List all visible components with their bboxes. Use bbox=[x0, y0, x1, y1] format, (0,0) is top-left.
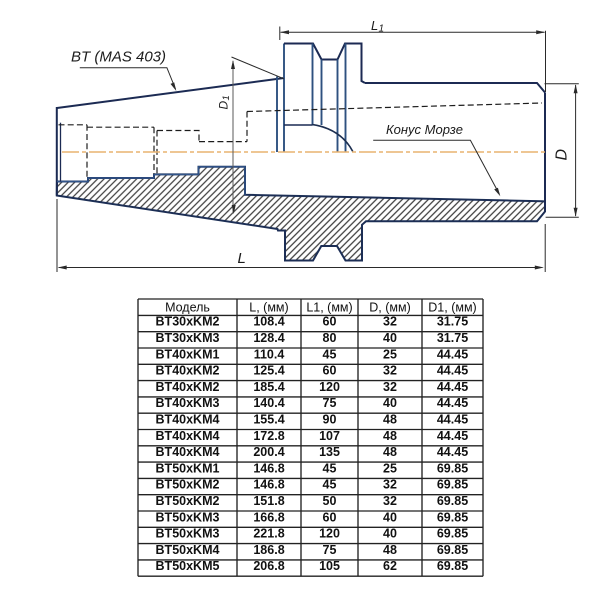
svg-text:31.75: 31.75 bbox=[437, 331, 468, 345]
svg-text:BT50xKM4: BT50xKM4 bbox=[156, 543, 220, 557]
svg-text:44.45: 44.45 bbox=[437, 429, 468, 443]
svg-text:BT50xKM3: BT50xKM3 bbox=[156, 510, 220, 524]
svg-text:Модель: Модель bbox=[165, 301, 210, 315]
svg-text:40: 40 bbox=[383, 527, 397, 541]
svg-text:BT50xKM1: BT50xKM1 bbox=[156, 461, 220, 475]
svg-text:50: 50 bbox=[323, 494, 337, 508]
svg-text:D: D bbox=[554, 149, 571, 161]
svg-text:75: 75 bbox=[323, 543, 337, 557]
svg-text:40: 40 bbox=[383, 331, 397, 345]
svg-text:60: 60 bbox=[323, 364, 337, 378]
svg-text:120: 120 bbox=[319, 527, 340, 541]
svg-text:172.8: 172.8 bbox=[253, 429, 284, 443]
svg-text:48: 48 bbox=[383, 429, 397, 443]
svg-text:166.8: 166.8 bbox=[253, 510, 284, 524]
svg-text:31.75: 31.75 bbox=[437, 315, 468, 329]
svg-text:45: 45 bbox=[323, 347, 337, 361]
svg-text:BT40xKM4: BT40xKM4 bbox=[156, 413, 220, 427]
svg-text:BT50xKM2: BT50xKM2 bbox=[156, 494, 220, 508]
svg-text:69.85: 69.85 bbox=[437, 478, 468, 492]
svg-text:D: D bbox=[217, 101, 231, 110]
svg-text:25: 25 bbox=[383, 461, 397, 475]
svg-text:80: 80 bbox=[323, 331, 337, 345]
svg-text:D, (мм): D, (мм) bbox=[369, 301, 411, 315]
svg-text:128.4: 128.4 bbox=[253, 331, 284, 345]
svg-text:44.45: 44.45 bbox=[437, 396, 468, 410]
svg-text:32: 32 bbox=[383, 478, 397, 492]
svg-text:75: 75 bbox=[323, 396, 337, 410]
svg-text:1: 1 bbox=[379, 24, 385, 35]
svg-text:BT40xKM4: BT40xKM4 bbox=[156, 445, 220, 459]
svg-text:25: 25 bbox=[383, 347, 397, 361]
svg-text:48: 48 bbox=[383, 445, 397, 459]
svg-text:107: 107 bbox=[319, 429, 340, 443]
svg-text:108.4: 108.4 bbox=[253, 315, 284, 329]
svg-text:155.4: 155.4 bbox=[253, 413, 284, 427]
svg-text:200.4: 200.4 bbox=[253, 445, 284, 459]
svg-text:186.8: 186.8 bbox=[253, 543, 284, 557]
svg-text:1: 1 bbox=[221, 95, 232, 100]
svg-text:40: 40 bbox=[383, 510, 397, 524]
svg-text:BT40xKM2: BT40xKM2 bbox=[156, 364, 220, 378]
svg-text:40: 40 bbox=[383, 396, 397, 410]
svg-text:120: 120 bbox=[319, 380, 340, 394]
svg-text:BT40xKM1: BT40xKM1 bbox=[156, 347, 220, 361]
svg-text:206.8: 206.8 bbox=[253, 559, 284, 573]
svg-text:BT40xKM4: BT40xKM4 bbox=[156, 429, 220, 443]
svg-text:151.8: 151.8 bbox=[253, 494, 284, 508]
svg-text:69.85: 69.85 bbox=[437, 494, 468, 508]
svg-text:185.4: 185.4 bbox=[253, 380, 284, 394]
svg-text:BT30xKM3: BT30xKM3 bbox=[156, 331, 220, 345]
svg-text:44.45: 44.45 bbox=[437, 445, 468, 459]
svg-text:44.45: 44.45 bbox=[437, 347, 468, 361]
svg-text:44.45: 44.45 bbox=[437, 364, 468, 378]
svg-text:146.8: 146.8 bbox=[253, 478, 284, 492]
svg-text:32: 32 bbox=[383, 494, 397, 508]
svg-text:62: 62 bbox=[383, 559, 397, 573]
svg-text:69.85: 69.85 bbox=[437, 543, 468, 557]
svg-text:69.85: 69.85 bbox=[437, 527, 468, 541]
svg-text:140.4: 140.4 bbox=[253, 396, 284, 410]
svg-text:BT50xKM3: BT50xKM3 bbox=[156, 527, 220, 541]
svg-text:110.4: 110.4 bbox=[254, 347, 285, 361]
svg-text:BT30xKM2: BT30xKM2 bbox=[156, 315, 220, 329]
svg-text:BT40xKM2: BT40xKM2 bbox=[156, 380, 220, 394]
svg-text:L: L bbox=[238, 250, 246, 267]
svg-text:44.45: 44.45 bbox=[437, 413, 468, 427]
svg-text:L: L bbox=[371, 18, 378, 33]
svg-text:125.4: 125.4 bbox=[253, 364, 284, 378]
svg-text:32: 32 bbox=[383, 380, 397, 394]
svg-text:135: 135 bbox=[319, 445, 340, 459]
svg-text:60: 60 bbox=[323, 315, 337, 329]
svg-text:221.8: 221.8 bbox=[253, 527, 284, 541]
svg-text:BT50xKM2: BT50xKM2 bbox=[156, 478, 220, 492]
svg-text:69.85: 69.85 bbox=[437, 559, 468, 573]
svg-text:BT (MAS 403): BT (MAS 403) bbox=[71, 49, 166, 66]
svg-text:L, (мм): L, (мм) bbox=[249, 301, 288, 315]
svg-text:BT40xKM3: BT40xKM3 bbox=[156, 396, 220, 410]
svg-text:90: 90 bbox=[323, 413, 337, 427]
svg-text:L1, (мм): L1, (мм) bbox=[306, 301, 352, 315]
svg-text:D1, (мм): D1, (мм) bbox=[428, 301, 476, 315]
svg-text:69.85: 69.85 bbox=[437, 461, 468, 475]
svg-text:32: 32 bbox=[383, 315, 397, 329]
svg-text:69.85: 69.85 bbox=[437, 510, 468, 524]
svg-text:146.8: 146.8 bbox=[253, 461, 284, 475]
svg-text:44.45: 44.45 bbox=[437, 380, 468, 394]
svg-text:45: 45 bbox=[323, 461, 337, 475]
svg-text:32: 32 bbox=[383, 364, 397, 378]
svg-text:BT50xKM5: BT50xKM5 bbox=[156, 559, 220, 573]
svg-text:Конус Морзе: Конус Морзе bbox=[386, 122, 463, 137]
svg-text:60: 60 bbox=[323, 510, 337, 524]
svg-text:48: 48 bbox=[383, 543, 397, 557]
svg-text:45: 45 bbox=[323, 478, 337, 492]
svg-text:105: 105 bbox=[319, 559, 340, 573]
svg-text:48: 48 bbox=[383, 413, 397, 427]
